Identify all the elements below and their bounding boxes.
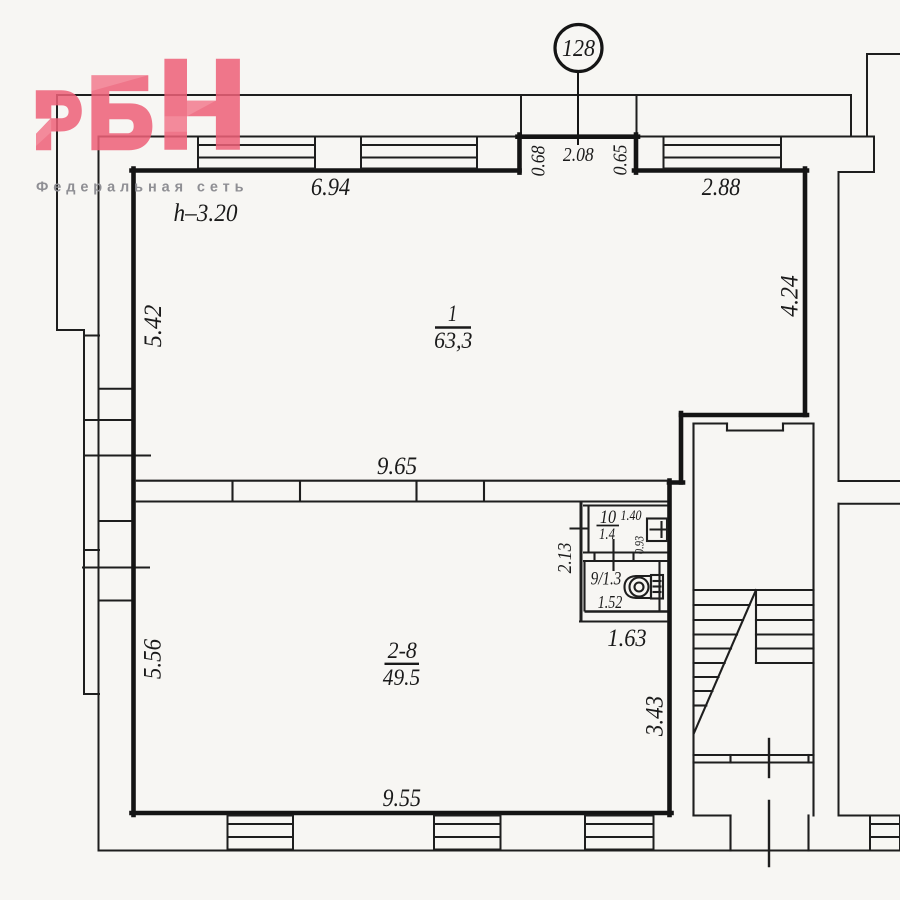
svg-text:1.40: 1.40 <box>621 507 642 524</box>
svg-text:1.4: 1.4 <box>599 526 615 544</box>
svg-text:9.55: 9.55 <box>383 785 422 813</box>
svg-text:9.65: 9.65 <box>377 453 417 480</box>
svg-text:2-8: 2-8 <box>388 637 417 663</box>
svg-text:4.24: 4.24 <box>776 275 804 317</box>
svg-text:1: 1 <box>448 300 457 327</box>
svg-text:h–3.20: h–3.20 <box>174 199 238 227</box>
svg-text:1.63: 1.63 <box>607 625 646 652</box>
svg-text:10: 10 <box>600 506 616 528</box>
svg-text:0.65: 0.65 <box>610 145 632 176</box>
svg-text:3.43: 3.43 <box>642 696 669 737</box>
svg-text:2.13: 2.13 <box>554 543 576 574</box>
svg-text:2.88: 2.88 <box>702 174 741 202</box>
svg-text:63,3: 63,3 <box>434 327 472 353</box>
svg-text:2.08: 2.08 <box>563 144 594 166</box>
svg-text:49.5: 49.5 <box>383 664 420 690</box>
svg-text:5.42: 5.42 <box>140 305 167 347</box>
svg-text:1.52: 1.52 <box>598 594 623 613</box>
svg-text:0.93: 0.93 <box>632 536 646 554</box>
svg-text:9/1.3: 9/1.3 <box>591 568 622 589</box>
svg-text:5.56: 5.56 <box>140 639 167 679</box>
svg-text:128: 128 <box>562 34 596 61</box>
svg-text:6.94: 6.94 <box>311 174 350 201</box>
svg-text:Федеральная сеть: Федеральная сеть <box>36 180 248 196</box>
svg-text:0.68: 0.68 <box>528 145 550 176</box>
